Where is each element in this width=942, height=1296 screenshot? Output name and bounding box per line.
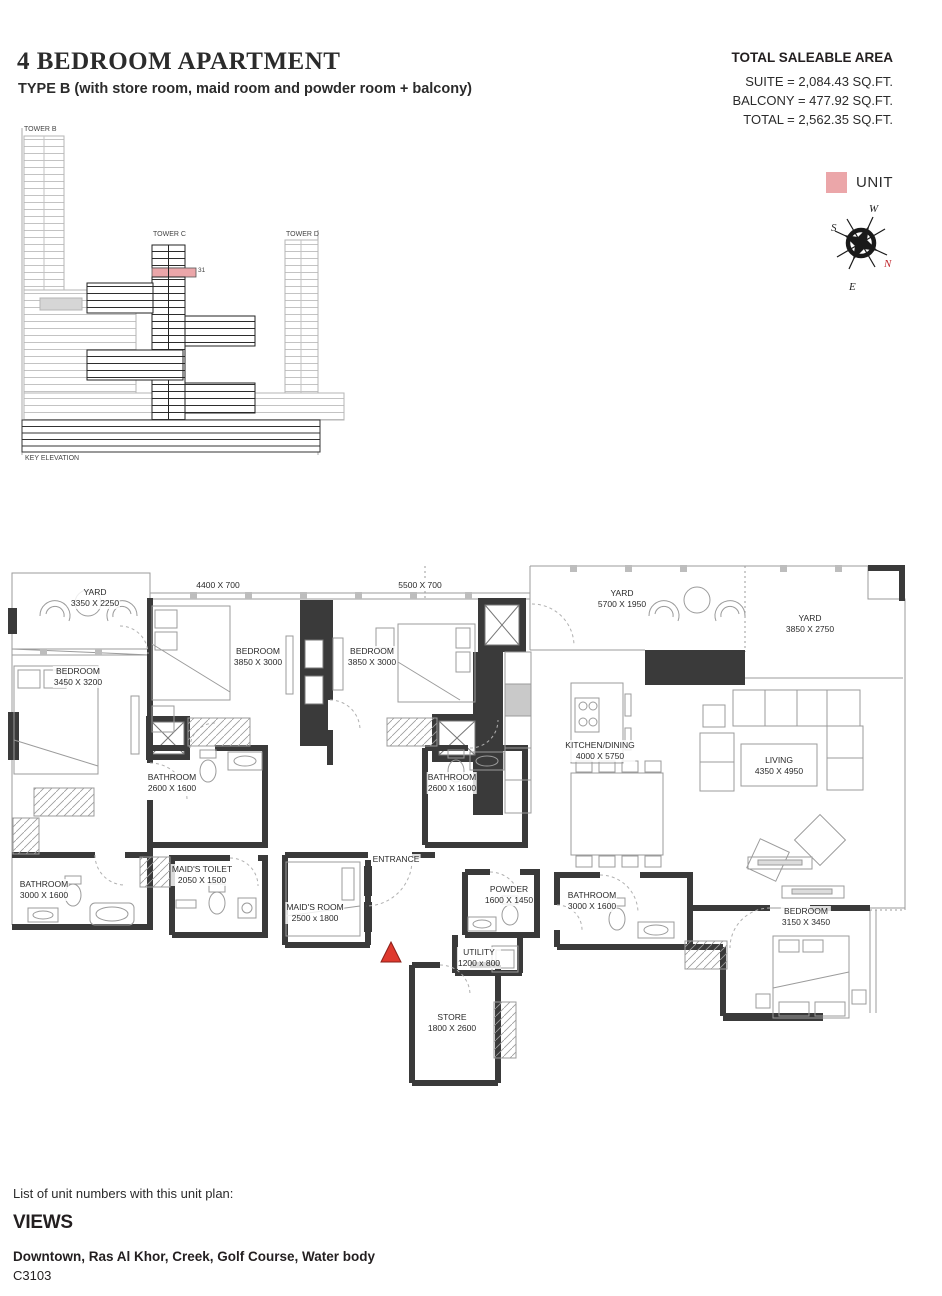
unit-legend-swatch — [826, 172, 847, 193]
page-title: 4 BEDROOM APARTMENT — [17, 48, 340, 76]
total-saleable-area-panel: TOTAL SALEABLE AREA SUITE = 2,084.43 SQ.… — [731, 50, 893, 131]
balcony-dim-1: 4400 X 700 — [195, 580, 240, 591]
compass-north: N — [884, 258, 891, 270]
room-label-kitchen-dining: KITCHEN/DINING4000 X 5750 — [564, 740, 635, 762]
tower-d-label: TOWER D — [286, 231, 319, 238]
area-panel-title: TOTAL SALEABLE AREA — [731, 50, 893, 65]
area-suite: SUITE = 2,084.43 SQ.FT. — [731, 74, 893, 89]
compass-west: W — [869, 203, 878, 215]
key-elevation-caption: KEY ELEVATION — [25, 455, 79, 462]
views-list: Downtown, Ras Al Khor, Creek, Golf Cours… — [13, 1249, 375, 1264]
key-elevation-diagram — [22, 128, 344, 455]
room-label-maids-room: MAID'S ROOM2500 x 1800 — [285, 902, 344, 924]
compass-east: E — [849, 281, 856, 293]
page-subtitle: TYPE B (with store room, maid room and p… — [18, 81, 472, 97]
room-label-bedroom-1: BEDROOM3450 X 3200 — [53, 666, 103, 688]
compass-south: S — [831, 222, 837, 234]
gray-floor-marker — [40, 298, 82, 310]
room-label-yard-tl: YARD3350 X 2250 — [70, 587, 120, 609]
unit-number: C3103 — [13, 1268, 51, 1283]
room-label-bathroom-b: BATHROOM2600 X 1600 — [427, 772, 477, 794]
unit-list-caption: List of unit numbers with this unit plan… — [13, 1186, 233, 1201]
room-label-yard-right: YARD3850 X 2750 — [785, 613, 835, 635]
room-label-bedroom-2: BEDROOM3850 X 3000 — [233, 646, 283, 668]
balcony-dim-2: 5500 X 700 — [397, 580, 442, 591]
highlighted-floor-number: 31 — [198, 267, 205, 274]
tower-c-label: TOWER C — [153, 231, 186, 238]
room-label-utility: UTILITY1200 x 800 — [457, 947, 501, 969]
room-label-living: LIVING4350 X 4950 — [754, 755, 804, 777]
room-label-bedroom-4: BEDROOM3150 X 3450 — [781, 906, 831, 928]
tower-b-label: TOWER B — [24, 126, 57, 133]
floor-plan-drawing — [8, 565, 905, 1083]
room-label-bedroom-3: BEDROOM3850 X 3000 — [347, 646, 397, 668]
views-title: VIEWS — [13, 1212, 73, 1234]
room-label-bathroom-left: BATHROOM3000 X 1600 — [19, 879, 69, 901]
area-total: TOTAL = 2,562.35 SQ.FT. — [731, 112, 893, 127]
highlighted-unit-floor — [152, 268, 196, 277]
compass-rose — [835, 217, 887, 269]
room-label-bathroom-a: BATHROOM2600 X 1600 — [147, 772, 197, 794]
unit-legend-label: UNIT — [856, 174, 893, 191]
floorplan-brochure-page: { "header": { "title": "4 BEDROOM APARTM… — [0, 0, 942, 1296]
entrance-label: ENTRANCE — [372, 854, 421, 865]
room-label-maids-toilet: MAID'S TOILET2050 X 1500 — [171, 864, 233, 886]
room-label-bathroom-right: BATHROOM3000 X 1600 — [567, 890, 617, 912]
entrance-marker-triangle — [381, 942, 401, 962]
area-balcony: BALCONY = 477.92 SQ.FT. — [731, 93, 893, 108]
room-label-store: STORE1800 X 2600 — [427, 1012, 477, 1034]
room-label-yard-mid: YARD5700 X 1950 — [597, 588, 647, 610]
plan-drawing-canvas — [0, 0, 942, 1296]
room-label-powder: POWDER1600 X 1450 — [484, 884, 534, 906]
